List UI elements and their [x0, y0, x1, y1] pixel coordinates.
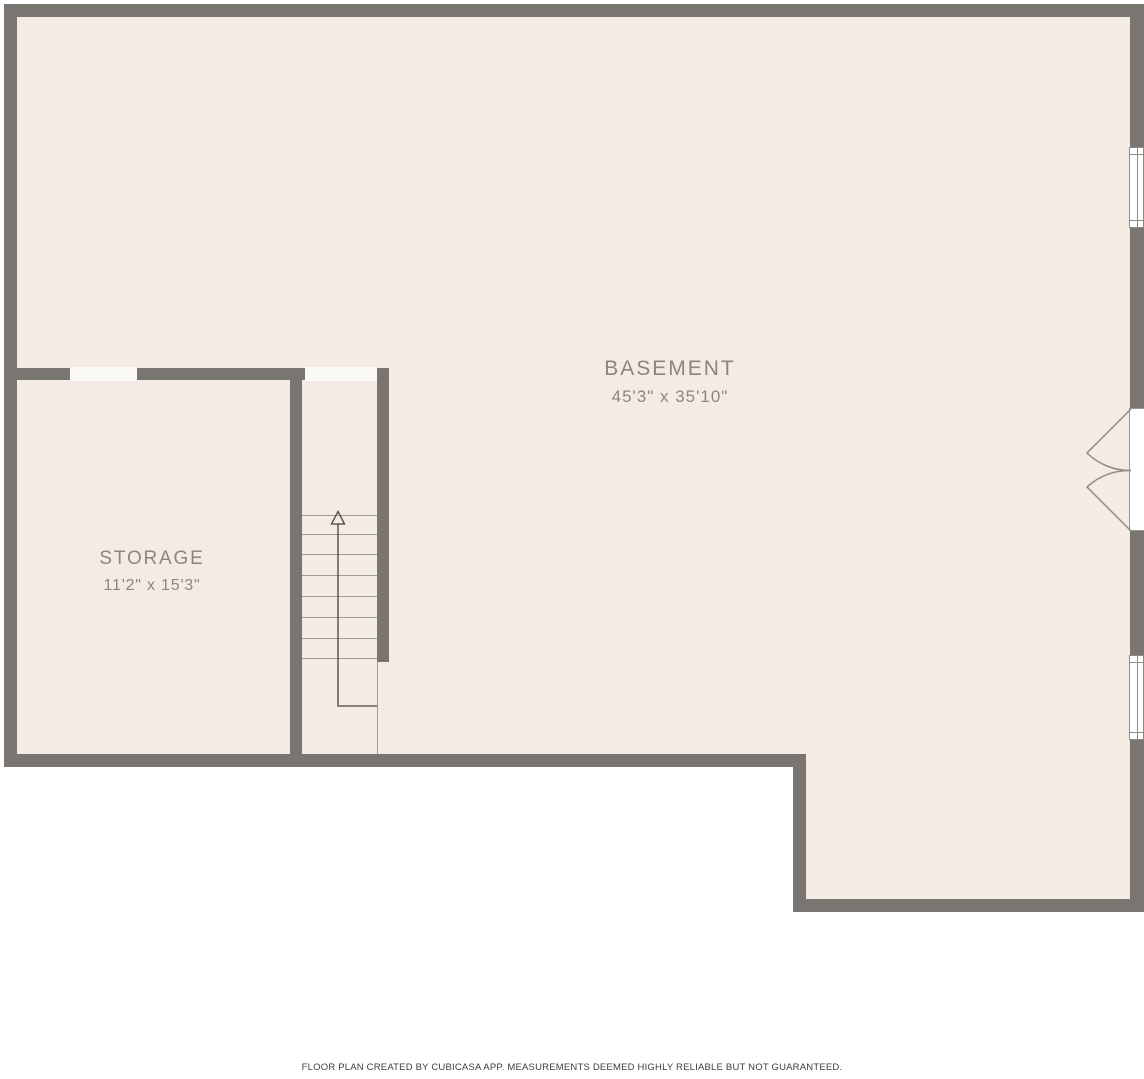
- storage-room-dimensions: 11'2" x 15'3": [52, 578, 252, 594]
- wall-left-exterior: [4, 4, 17, 767]
- wall-top-exterior: [4, 4, 1143, 17]
- footer-disclaimer: FLOOR PLAN CREATED BY CUBICASA APP. MEAS…: [0, 1062, 1144, 1073]
- basement-room-label: BASEMENT: [520, 358, 820, 379]
- stair-step: [302, 596, 377, 597]
- stair-step: [302, 515, 377, 516]
- wall-bottom-exterior: [4, 754, 806, 767]
- stair-step: [302, 534, 377, 535]
- wall-stairwell-left: [290, 368, 302, 754]
- storage-door-opening: [70, 367, 137, 381]
- stair-top-opening: [305, 367, 377, 381]
- stair-step: [302, 658, 377, 659]
- window-frame-line: [1130, 154, 1143, 155]
- stair-step: [302, 617, 377, 618]
- wall-storage-top-right-segment: [137, 368, 305, 380]
- window-right-upper-icon: [1129, 147, 1144, 228]
- window-frame-line: [1130, 662, 1143, 663]
- window-glass-line: [1137, 656, 1138, 739]
- window-glass-line: [1137, 148, 1138, 227]
- storage-room-label: STORAGE: [52, 549, 252, 568]
- wall-notch-vertical: [793, 754, 806, 912]
- window-frame-line: [1130, 220, 1143, 221]
- stair-step: [302, 575, 377, 576]
- stair-edge-line: [377, 662, 378, 754]
- wall-storage-top-left-segment: [4, 368, 70, 380]
- wall-bottom-right-exterior: [793, 899, 1144, 912]
- basement-floor-annex-area: [798, 600, 1135, 905]
- basement-room-dimensions: 45'3" x 35'10": [520, 388, 820, 405]
- window-frame-line: [1130, 732, 1143, 733]
- window-right-lower-icon: [1129, 655, 1144, 740]
- wall-stairwell-right: [377, 368, 389, 662]
- exterior-door-opening: [1129, 408, 1144, 531]
- stair-step: [302, 638, 377, 639]
- stair-step: [302, 554, 377, 555]
- floor-plan: BASEMENT 45'3" x 35'10" STORAGE 11'2" x …: [0, 0, 1144, 1079]
